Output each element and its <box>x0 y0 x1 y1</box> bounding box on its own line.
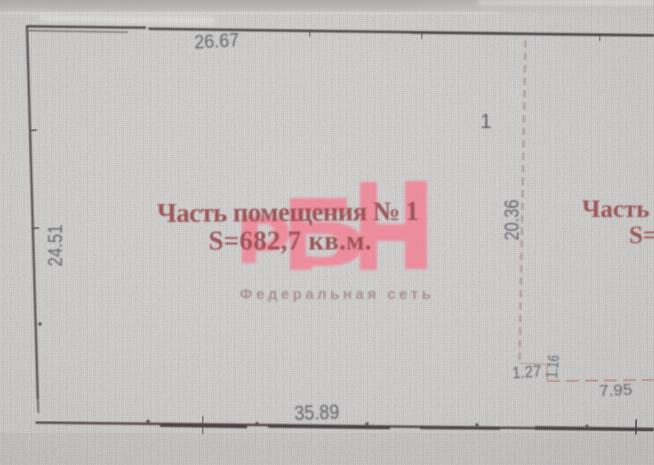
svg-text:S=6: S=6 <box>629 222 654 249</box>
svg-text:24.51: 24.51 <box>45 225 67 267</box>
svg-text:Часть по: Часть по <box>582 196 654 223</box>
svg-text:1.27: 1.27 <box>512 363 542 383</box>
svg-text:20.36: 20.36 <box>502 200 524 241</box>
svg-text:Федеральная сеть: Федеральная сеть <box>240 286 435 303</box>
svg-text:26.67: 26.67 <box>194 29 240 53</box>
svg-text:7.95: 7.95 <box>599 382 633 401</box>
svg-text:S=682,7 кв.м.: S=682,7 кв.м. <box>209 226 372 256</box>
svg-text:35.89: 35.89 <box>294 401 340 426</box>
svg-text:1.16: 1.16 <box>544 354 563 379</box>
svg-text:1: 1 <box>480 110 491 133</box>
svg-text:Часть помещения № 1: Часть помещения № 1 <box>157 196 419 228</box>
